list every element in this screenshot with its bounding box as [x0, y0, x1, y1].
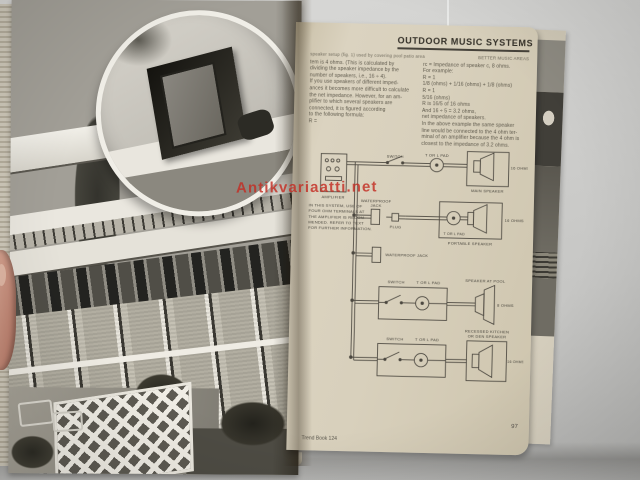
waterproof-jack-icon: [371, 209, 380, 224]
kitchen-speaker-label: OR DEN SPEAKER: [468, 334, 507, 340]
pad-label: T OR L PAD: [425, 153, 449, 159]
t-or-l-pad-icon: [430, 159, 444, 173]
next-page-photo-fragment: [533, 40, 566, 93]
jack-label: WATERPROOF JACK: [385, 252, 428, 258]
main-speaker-label: MAIN SPEAKER: [471, 188, 504, 194]
diagram-note: FOR FURTHER INFORMATION.: [308, 225, 372, 231]
horn-speaker-icon: [475, 285, 495, 324]
plug-label: PLUG: [390, 224, 402, 229]
pad-label: T OR L PAD: [415, 337, 439, 343]
switch-label: SWITCH: [388, 279, 405, 284]
right-page: OUTDOOR MUSIC SYSTEMS speaker setup (fig…: [286, 22, 538, 455]
patio-chair: [18, 399, 55, 427]
jack-label: JACK: [370, 203, 381, 208]
kitchen-ohms-label: 16 OHMS: [507, 360, 525, 364]
recessed-speaker-icon: [466, 341, 507, 382]
main-speaker-icon: [467, 152, 509, 187]
caption-right: BETTER MUSIC AREAS: [478, 55, 529, 61]
text-column-left: tem is 4 ohms. (This is calculated bydiv…: [308, 59, 416, 147]
thumbnail: [0, 264, 6, 286]
body-text-columns: tem is 4 ohms. (This is calculated bydiv…: [308, 59, 529, 150]
photo-of-open-book: OUTDOOR MUSIC SYSTEMS speaker setup (fig…: [0, 0, 640, 480]
title-rule: [397, 47, 529, 52]
switch-label: SWITCH: [386, 336, 403, 341]
pool-ohms-label: 8 OHMS: [497, 303, 514, 308]
page-title-block: OUTDOOR MUSIC SYSTEMS: [397, 35, 529, 52]
switch-label: SWITCH: [387, 154, 404, 159]
pool-speaker-label: SPEAKER AT POOL: [465, 278, 506, 284]
plug-icon: [386, 214, 405, 222]
pad-label: T OR L PAD: [443, 232, 465, 236]
left-page-photo: [8, 0, 301, 475]
pad-label: T OR L PAD: [416, 280, 440, 286]
watermark: Antikvariaatti.net: [236, 178, 378, 196]
speaker-face: [160, 62, 227, 149]
text-column-right: rc = Impedance of speaker c, 8 ohms.For …: [421, 61, 529, 149]
waterproof-jack-icon: [372, 247, 381, 262]
portable-ohms-label: 16 OHMS: [505, 218, 524, 223]
caption-left: speaker setup (fig. 1) used by covering …: [310, 51, 425, 59]
page-title: OUTDOOR MUSIC SYSTEMS: [397, 35, 529, 48]
portable-speaker-label: PORTABLE SPEAKER: [448, 241, 493, 247]
page-number: 97: [511, 424, 518, 430]
main-ohms-label: 16 OHMS: [511, 165, 528, 170]
book-gutter: [282, 0, 312, 466]
switch-pad-box: [377, 344, 446, 378]
switch-pad-box: [378, 287, 447, 321]
patio-table: [52, 410, 83, 432]
